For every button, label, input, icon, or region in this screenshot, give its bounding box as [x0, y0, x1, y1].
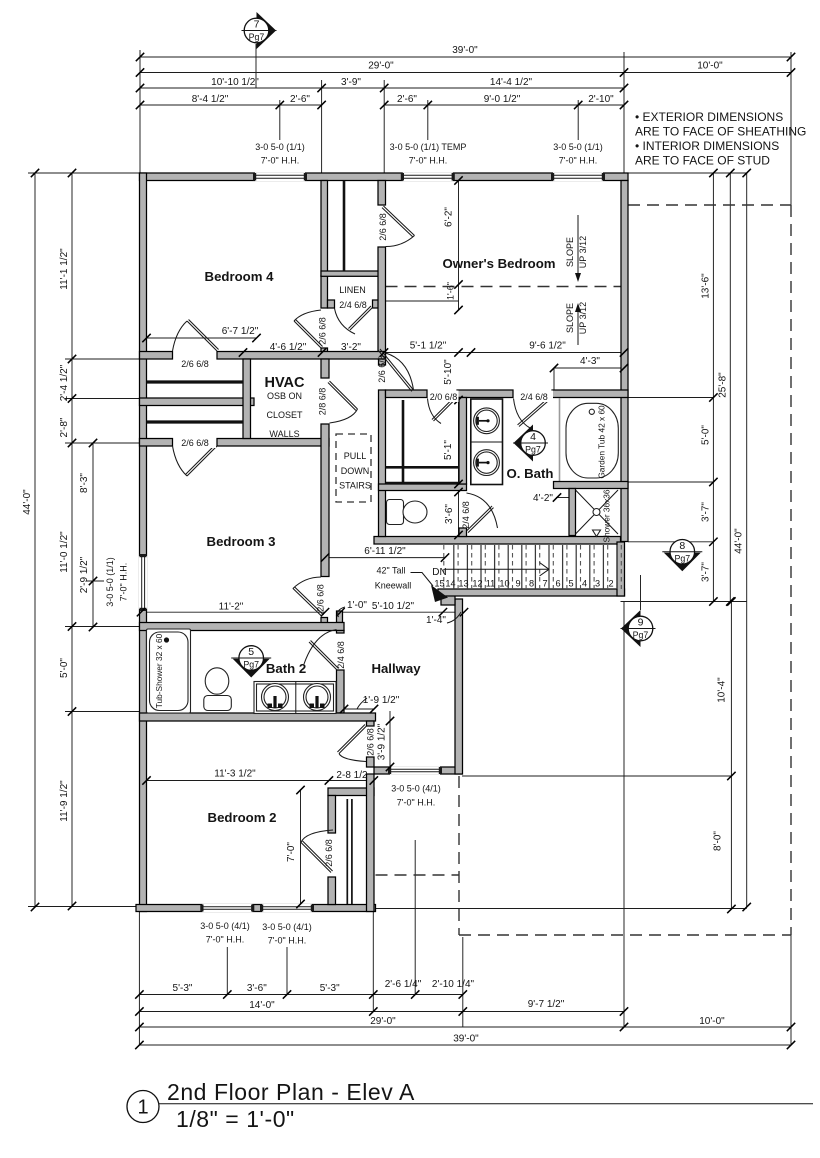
svg-text:14'-4 1/2": 14'-4 1/2" — [490, 77, 533, 88]
svg-text:1'-0": 1'-0" — [347, 600, 367, 611]
svg-text:1: 1 — [137, 1097, 148, 1119]
svg-text:3'-7": 3'-7" — [701, 562, 712, 582]
svg-text:13: 13 — [458, 579, 468, 589]
svg-text:2'-6": 2'-6" — [397, 94, 417, 105]
svg-text:6: 6 — [555, 579, 560, 589]
svg-text:5'-3": 5'-3" — [320, 983, 340, 994]
svg-text:29'-0": 29'-0" — [368, 61, 394, 72]
svg-text:13'-6": 13'-6" — [701, 273, 712, 299]
svg-text:Garden Tub 42 x 60: Garden Tub 42 x 60 — [597, 405, 607, 479]
svg-text:HVAC: HVAC — [264, 375, 305, 391]
svg-text:2/0 6/8: 2/0 6/8 — [430, 392, 458, 402]
svg-text:3-0 5-0 (4/1): 3-0 5-0 (4/1) — [200, 921, 250, 931]
svg-text:5'-10 1/2": 5'-10 1/2" — [372, 601, 415, 612]
svg-text:2/6 6/8: 2/6 6/8 — [324, 839, 334, 867]
svg-text:3'-9": 3'-9" — [341, 77, 361, 88]
svg-text:2/6 6/8: 2/6 6/8 — [316, 584, 326, 612]
svg-text:11'-0 1/2": 11'-0 1/2" — [59, 531, 70, 573]
svg-text:2/8 6/8: 2/8 6/8 — [318, 388, 328, 416]
svg-text:2/6 6/8: 2/6 6/8 — [365, 728, 375, 756]
svg-text:7: 7 — [542, 579, 547, 589]
svg-text:7'-0" H.H.: 7'-0" H.H. — [268, 936, 306, 946]
svg-text:14'-0": 14'-0" — [249, 1000, 275, 1011]
svg-text:2'-10": 2'-10" — [588, 94, 614, 105]
svg-text:9'-7 1/2": 9'-7 1/2" — [528, 999, 565, 1010]
svg-text:WALLS: WALLS — [269, 429, 299, 439]
svg-text:Bedroom 2: Bedroom 2 — [208, 810, 277, 825]
svg-text:2'-9 1/2": 2'-9 1/2" — [79, 556, 90, 593]
svg-text:DN: DN — [432, 567, 446, 578]
svg-text:10: 10 — [499, 579, 509, 589]
svg-text:9: 9 — [638, 617, 644, 629]
svg-text:7: 7 — [254, 19, 260, 31]
svg-text:5'-0": 5'-0" — [59, 658, 70, 678]
svg-text:4: 4 — [530, 431, 536, 443]
svg-text:9'-6 1/2": 9'-6 1/2" — [529, 341, 566, 352]
svg-text:2/6 6/8: 2/6 6/8 — [181, 438, 209, 448]
svg-text:• EXTERIOR DIMENSIONS: • EXTERIOR DIMENSIONS — [635, 110, 783, 124]
svg-text:8'-0": 8'-0" — [713, 831, 724, 851]
svg-text:2'-6": 2'-6" — [290, 94, 310, 105]
svg-text:11: 11 — [486, 579, 496, 589]
svg-text:Hallway: Hallway — [371, 661, 421, 676]
svg-text:7'-0" H.H.: 7'-0" H.H. — [397, 798, 435, 808]
svg-text:STAIRS: STAIRS — [339, 481, 371, 491]
svg-text:5'-1 1/2": 5'-1 1/2" — [410, 341, 447, 352]
svg-text:CLOSET: CLOSET — [266, 410, 303, 420]
svg-text:5'-10": 5'-10" — [443, 359, 454, 385]
svg-text:7'-0" H.H.: 7'-0" H.H. — [261, 156, 299, 166]
svg-text:44'-0": 44'-0" — [734, 528, 745, 554]
svg-text:2/6 6/8: 2/6 6/8 — [377, 355, 387, 383]
svg-text:Shower 36x36: Shower 36x36 — [602, 489, 612, 542]
svg-text:Bedroom 4: Bedroom 4 — [205, 269, 275, 284]
svg-text:9: 9 — [515, 579, 520, 589]
svg-text:3-0 5-0 (4/1): 3-0 5-0 (4/1) — [262, 922, 312, 932]
svg-text:2-8 1/2: 2-8 1/2 — [336, 770, 368, 781]
svg-text:5: 5 — [568, 579, 573, 589]
svg-text:3-0 5-0 (1/1): 3-0 5-0 (1/1) — [553, 142, 603, 152]
svg-text:7'-0": 7'-0" — [286, 842, 297, 862]
svg-text:3: 3 — [595, 579, 600, 589]
svg-text:14: 14 — [445, 579, 455, 589]
svg-text:4'-2": 4'-2" — [533, 493, 553, 504]
svg-text:39'-0": 39'-0" — [452, 45, 478, 56]
svg-text:3-0 5-0 (4/1): 3-0 5-0 (4/1) — [391, 784, 441, 794]
svg-text:10'-0": 10'-0" — [697, 61, 723, 72]
svg-text:3'-9 1/2": 3'-9 1/2" — [377, 723, 388, 760]
svg-text:4'-3": 4'-3" — [580, 356, 600, 367]
svg-text:5: 5 — [248, 646, 254, 658]
svg-text:7'-0" H.H.: 7'-0" H.H. — [206, 935, 244, 945]
svg-text:12: 12 — [472, 579, 482, 589]
svg-text:3-0 5-0 (1/1): 3-0 5-0 (1/1) — [255, 142, 305, 152]
svg-text:SLOPE: SLOPE — [565, 303, 575, 333]
svg-text:3'-7": 3'-7" — [701, 502, 712, 522]
svg-text:O. Bath: O. Bath — [507, 466, 554, 481]
svg-text:Tub-Shower 32 x 60: Tub-Shower 32 x 60 — [154, 633, 164, 708]
svg-text:DOWN: DOWN — [341, 466, 370, 476]
svg-text:3'-6": 3'-6" — [247, 983, 267, 994]
svg-text:SLOPE: SLOPE — [565, 237, 575, 267]
svg-text:2'-10 1/4": 2'-10 1/4" — [432, 979, 475, 990]
svg-text:11'-3 1/2": 11'-3 1/2" — [214, 769, 256, 780]
svg-text:3'-6": 3'-6" — [444, 504, 455, 524]
svg-text:LINEN: LINEN — [339, 285, 366, 295]
svg-text:4: 4 — [582, 579, 587, 589]
svg-text:9'-0 1/2": 9'-0 1/2" — [484, 94, 521, 105]
svg-text:6'-7 1/2": 6'-7 1/2" — [222, 326, 259, 337]
svg-text:• INTERIOR DIMENSIONS: • INTERIOR DIMENSIONS — [635, 139, 779, 153]
svg-text:8'-4 1/2": 8'-4 1/2" — [192, 94, 229, 105]
svg-text:5'-1": 5'-1" — [443, 440, 454, 460]
svg-text:7'-0" H.H.: 7'-0" H.H. — [559, 156, 597, 166]
svg-text:3-0 5-0 (1/1): 3-0 5-0 (1/1) — [105, 557, 115, 607]
svg-text:4'-6 1/2": 4'-6 1/2" — [270, 342, 307, 353]
svg-text:2'-4 1/2": 2'-4 1/2" — [59, 364, 70, 401]
svg-text:8'-3": 8'-3" — [79, 473, 90, 493]
svg-text:1'-4": 1'-4" — [426, 615, 446, 626]
svg-text:7'-0" H.H.: 7'-0" H.H. — [409, 156, 447, 166]
svg-text:OSB ON: OSB ON — [267, 391, 302, 401]
svg-text:2/6 6/8: 2/6 6/8 — [181, 359, 209, 369]
svg-text:Owner's Bedroom: Owner's Bedroom — [442, 256, 555, 271]
svg-text:5'-3": 5'-3" — [173, 983, 193, 994]
svg-text:2/4 6/8: 2/4 6/8 — [461, 501, 471, 529]
svg-text:10'-4": 10'-4" — [717, 677, 728, 703]
svg-text:10'-0": 10'-0" — [699, 1016, 725, 1027]
svg-text:3'-2": 3'-2" — [341, 342, 361, 353]
svg-text:44'-0": 44'-0" — [22, 489, 33, 515]
svg-text:2/4 6/8: 2/4 6/8 — [336, 641, 346, 669]
svg-text:5'-0": 5'-0" — [701, 425, 712, 445]
svg-text:2/6 6/8: 2/6 6/8 — [318, 317, 328, 345]
svg-text:2'-8": 2'-8" — [59, 417, 70, 437]
svg-text:Bedroom 3: Bedroom 3 — [207, 534, 276, 549]
svg-text:3-0 5-0 (1/1) TEMP: 3-0 5-0 (1/1) TEMP — [390, 142, 467, 152]
svg-text:Pg7: Pg7 — [249, 32, 265, 42]
svg-text:Pg7: Pg7 — [243, 660, 259, 670]
svg-text:11'-1 1/2": 11'-1 1/2" — [59, 248, 70, 290]
svg-text:39'-0": 39'-0" — [453, 1034, 479, 1045]
svg-text:Pg7: Pg7 — [525, 445, 541, 455]
svg-text:11'-2": 11'-2" — [219, 602, 244, 613]
svg-text:Kneewall: Kneewall — [375, 581, 412, 591]
svg-text:1/8" = 1'-0": 1/8" = 1'-0" — [176, 1106, 295, 1132]
svg-text:6'-2": 6'-2" — [444, 207, 455, 227]
svg-text:UP 3/12: UP 3/12 — [578, 302, 588, 334]
svg-text:15: 15 — [434, 579, 444, 589]
svg-text:11'-9 1/2": 11'-9 1/2" — [59, 780, 70, 822]
svg-text:Bath 2: Bath 2 — [266, 661, 306, 676]
svg-text:PULL: PULL — [344, 451, 367, 461]
svg-text:2'-6 1/4": 2'-6 1/4" — [385, 979, 422, 990]
svg-text:1'-9 1/2": 1'-9 1/2" — [363, 695, 400, 706]
svg-text:25'-8": 25'-8" — [718, 372, 729, 398]
svg-text:Pg7: Pg7 — [633, 630, 649, 640]
svg-text:ARE TO FACE OF STUD: ARE TO FACE OF STUD — [635, 154, 770, 168]
svg-text:8: 8 — [529, 579, 534, 589]
svg-text:2: 2 — [608, 579, 613, 589]
svg-text:2/6 6/8: 2/6 6/8 — [378, 213, 388, 241]
svg-text:10'-10 1/2": 10'-10 1/2" — [211, 77, 259, 88]
svg-text:Pg7: Pg7 — [674, 553, 690, 563]
svg-text:2/4 6/8: 2/4 6/8 — [339, 300, 367, 310]
svg-text:6'-11 1/2": 6'-11 1/2" — [364, 546, 406, 557]
svg-text:8: 8 — [679, 540, 685, 552]
svg-text:7'-0" H.H.: 7'-0" H.H. — [119, 563, 129, 601]
svg-text:UP 3/12: UP 3/12 — [578, 236, 588, 268]
svg-text:29'-0": 29'-0" — [370, 1016, 396, 1027]
svg-text:ARE TO FACE OF SHEATHING: ARE TO FACE OF SHEATHING — [635, 125, 806, 139]
svg-text:1'-6": 1'-6" — [446, 282, 456, 300]
svg-text:2nd Floor Plan - Elev A: 2nd Floor Plan - Elev A — [167, 1079, 415, 1105]
svg-text:42" Tall: 42" Tall — [376, 566, 405, 576]
svg-text:2/4 6/8: 2/4 6/8 — [520, 392, 548, 402]
